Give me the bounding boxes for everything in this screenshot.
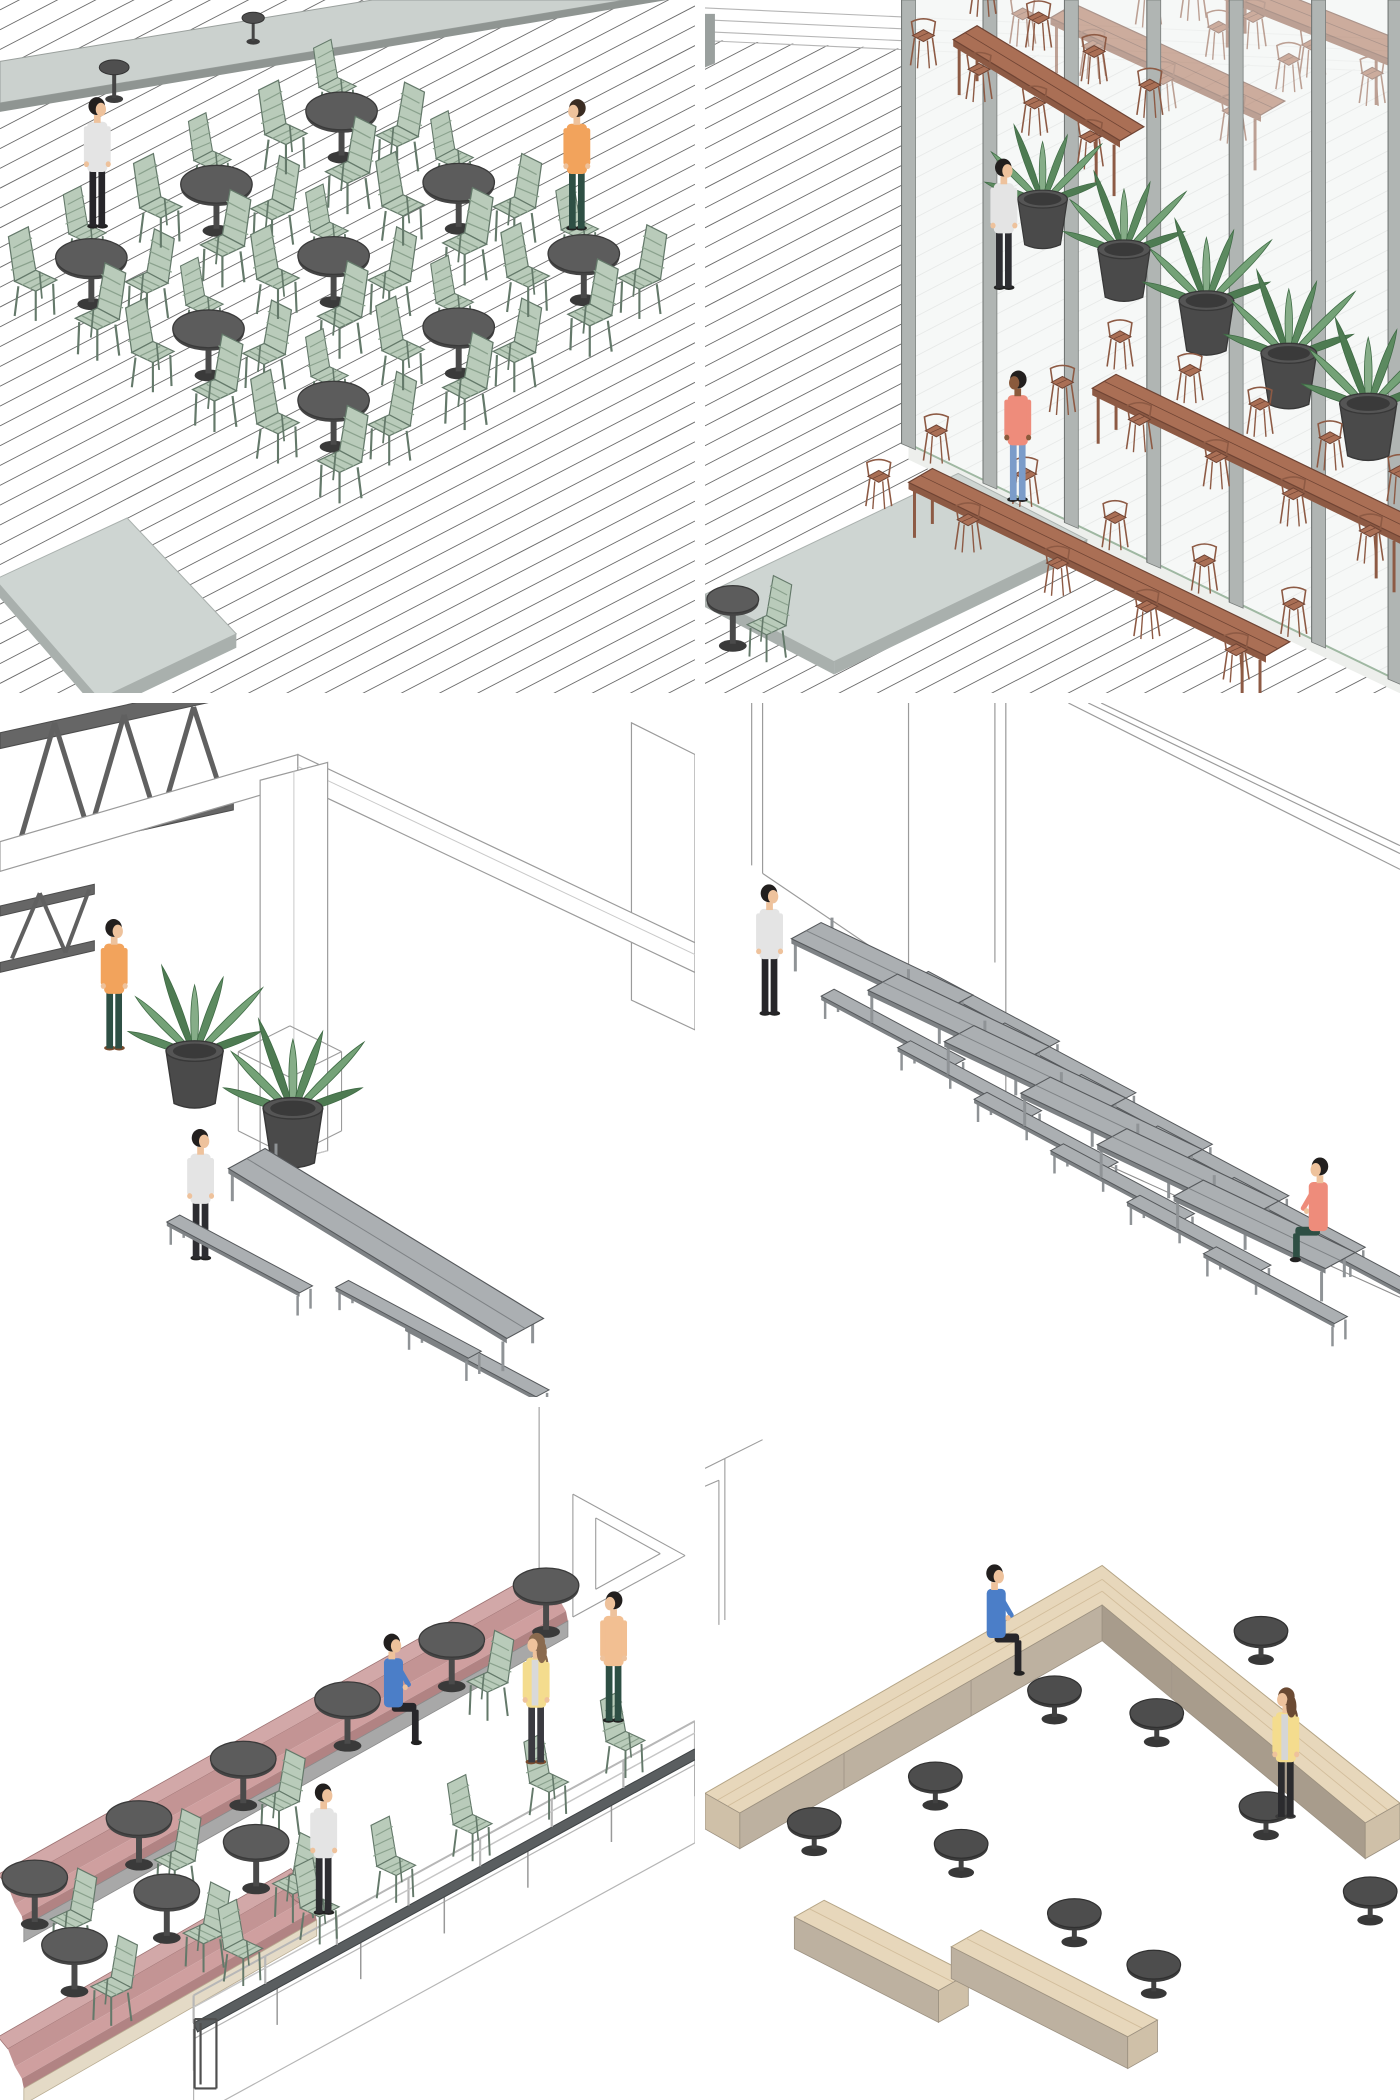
indoor-columns-plants-bench-19 xyxy=(167,1215,313,1315)
panel-outdoor-bar-terrace xyxy=(705,0,1400,693)
panel-indoor-bench-rows xyxy=(705,703,1400,1396)
outdoor-bar-terrace-band-2 xyxy=(705,14,715,67)
wood-plinth-lounge-stoolTable-1 xyxy=(1234,1616,1288,1665)
banquette-lounge-illustration xyxy=(0,1407,695,2100)
panel-indoor-columns-plants xyxy=(0,703,695,1396)
indoor-bench-rows-person-9 xyxy=(756,885,783,1016)
indoor-columns-plants-plant-12 xyxy=(127,964,266,1108)
panel-grid xyxy=(0,0,1400,2100)
wood-plinth-lounge-stoolTable-5 xyxy=(1028,1676,1082,1725)
outdoor-bistro-terrace-illustration xyxy=(0,0,695,693)
wood-plinth-lounge-stoolTable-6 xyxy=(1130,1698,1184,1747)
indoor-columns-plants-band-7 xyxy=(0,755,298,872)
wood-plinth-lounge-stoolTable-3 xyxy=(787,1807,841,1856)
outdoor-bar-terrace-illustration xyxy=(705,0,1400,693)
wood-plinth-lounge-stoolTable-11 xyxy=(934,1829,988,1878)
wood-plinth-lounge-lines-0 xyxy=(705,1439,763,1624)
panel-banquette-lounge xyxy=(0,1407,695,2100)
wood-plinth-lounge-stoolTable-4 xyxy=(909,1762,963,1811)
wood-plinth-lounge-stoolTable-13 xyxy=(1127,1950,1181,1999)
isometric-seating-collage xyxy=(0,0,1400,2100)
panel-wood-plinth-lounge xyxy=(705,1407,1400,2100)
indoor-columns-plants-grayTable-18 xyxy=(228,1144,543,1372)
indoor-columns-plants-band-6 xyxy=(631,723,695,1030)
wood-plinth-lounge-illustration xyxy=(705,1407,1400,2100)
wood-plinth-lounge-stoolTable-12 xyxy=(1048,1898,1102,1947)
panel-outdoor-bistro-terrace xyxy=(0,0,695,693)
wood-plinth-lounge-block-14 xyxy=(794,1900,968,2022)
wood-plinth-lounge-stoolTable-8 xyxy=(1343,1877,1397,1926)
indoor-bench-rows-lines-1 xyxy=(1068,703,1400,869)
outdoor-bistro-terrace-band-5 xyxy=(0,518,236,693)
wood-plinth-lounge-block-15 xyxy=(951,1930,1157,2069)
outdoor-bistro-terrace-person-17 xyxy=(84,97,111,228)
indoor-columns-plants-illustration xyxy=(0,703,695,1396)
indoor-columns-plants-person-15 xyxy=(101,919,128,1050)
indoor-bench-rows-illustration xyxy=(705,703,1400,1396)
